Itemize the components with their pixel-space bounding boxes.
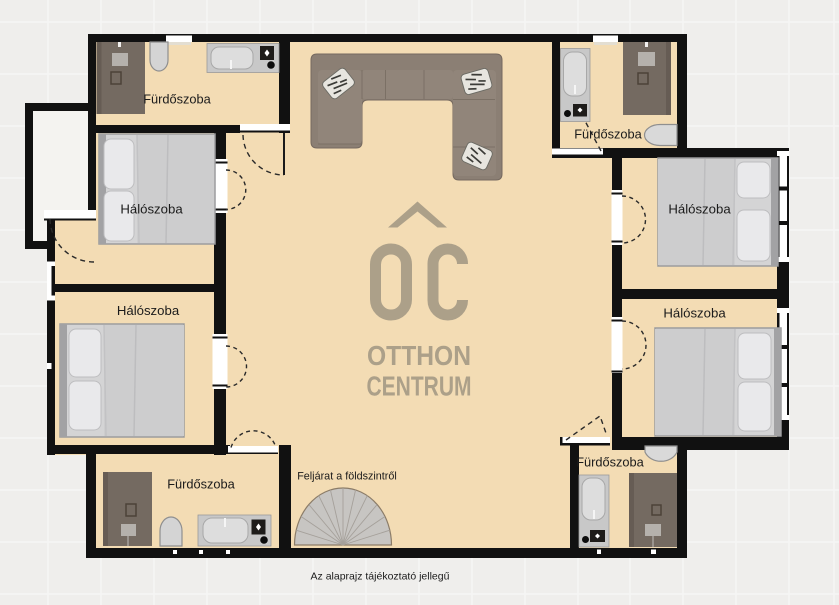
- svg-text:Feljárat a földszintről: Feljárat a földszintről: [297, 471, 397, 483]
- svg-text:Fürdőszoba: Fürdőszoba: [576, 455, 644, 470]
- svg-text:Fürdőszoba: Fürdőszoba: [167, 477, 235, 492]
- svg-text:Hálószoba: Hálószoba: [120, 202, 183, 217]
- svg-text:Hálószoba: Hálószoba: [668, 202, 731, 217]
- svg-text:Hálószoba: Hálószoba: [663, 306, 726, 321]
- svg-text:OTTHON: OTTHON: [367, 340, 471, 371]
- svg-text:Hálószoba: Hálószoba: [117, 303, 180, 318]
- svg-text:Fürdőszoba: Fürdőszoba: [574, 127, 642, 142]
- svg-text:Fürdőszoba: Fürdőszoba: [143, 92, 211, 107]
- svg-text:CENTRUM: CENTRUM: [367, 371, 472, 402]
- svg-text:Az alaprajz tájékoztató jelleg: Az alaprajz tájékoztató jellegű: [311, 571, 450, 583]
